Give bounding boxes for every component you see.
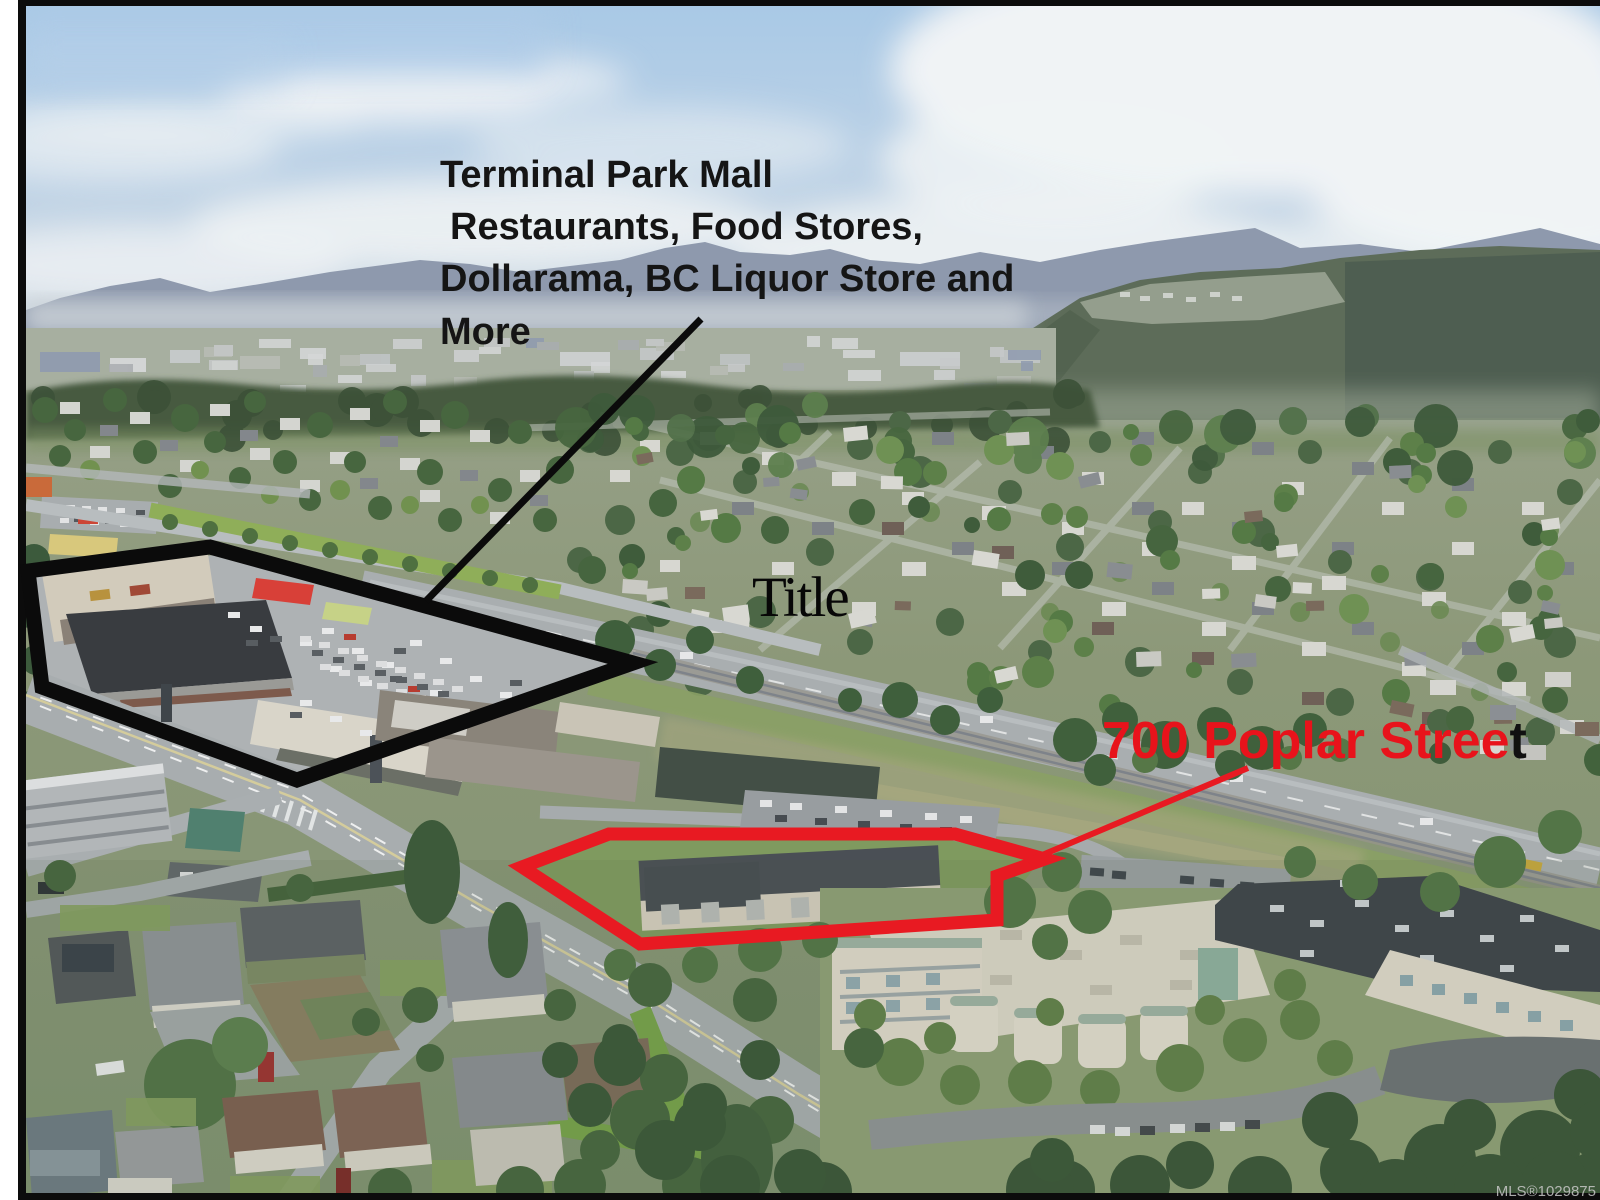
svg-text:700 Poplar Street: 700 Poplar Street	[1102, 712, 1527, 770]
svg-text:More: More	[440, 311, 531, 353]
svg-text:Dollarama, BC Liquor Store and: Dollarama, BC Liquor Store and	[440, 258, 1014, 300]
svg-text:Title: Title	[752, 566, 848, 629]
svg-text:Terminal Park Mall: Terminal Park Mall	[440, 154, 773, 196]
svg-text:Restaurants, Food Stores,: Restaurants, Food Stores,	[450, 206, 923, 248]
svg-text:MLS®1029875: MLS®1029875	[1496, 1183, 1596, 1200]
